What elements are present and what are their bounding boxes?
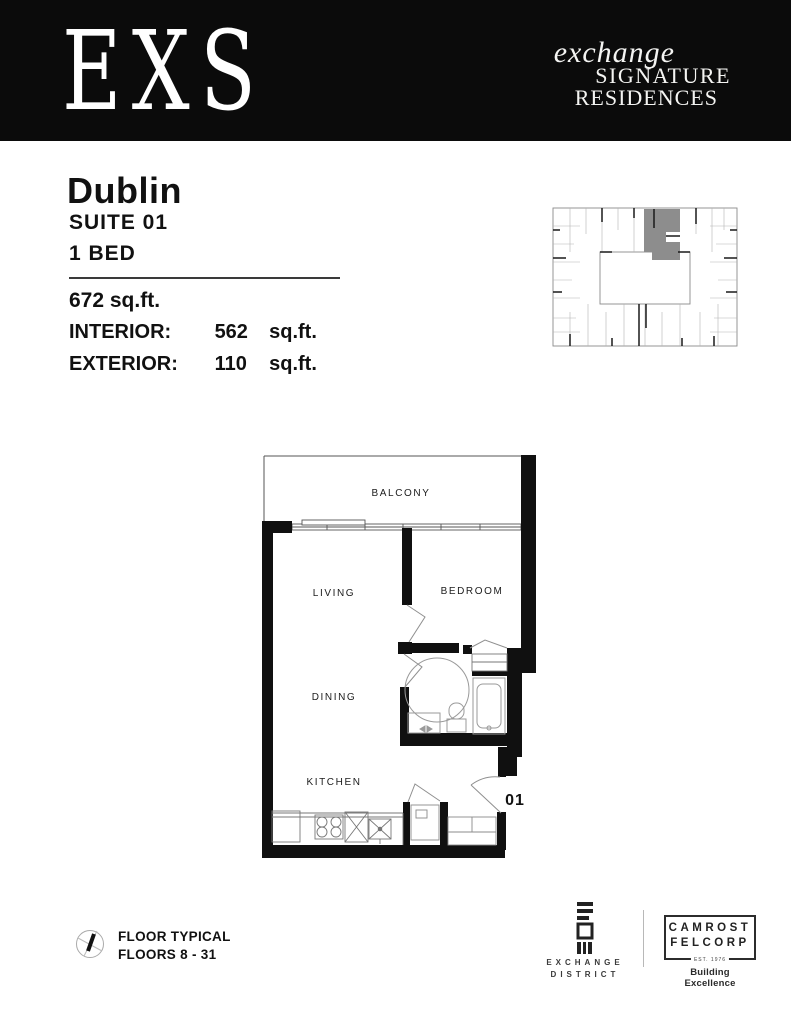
bedroom-closet <box>472 654 507 671</box>
suite-number: SUITE 01 <box>69 211 168 235</box>
interior-value: 562 <box>215 321 264 344</box>
footer-divider <box>643 910 644 967</box>
camrost-line1: CAMROST <box>666 921 754 936</box>
bedroom-closet-bifold <box>470 640 507 648</box>
fridge <box>272 811 300 842</box>
exterior-label: EXTERIOR: <box>69 353 209 376</box>
bathtub-inner <box>477 684 501 728</box>
suite-name: Dublin <box>67 170 182 212</box>
cooktop <box>315 815 343 839</box>
total-area: 672 sq.ft. <box>69 289 160 313</box>
floorplan-page: EXS exchange SIGNATURE RESIDENCES Dublin… <box>0 0 791 1024</box>
exchange-district-logo: EXCHANGE DISTRICT <box>545 901 625 979</box>
turning-circle <box>405 658 469 722</box>
exterior-value: 110 <box>215 353 264 376</box>
keyplan-diagram <box>550 200 740 360</box>
brand-residences: RESIDENCES <box>575 85 718 111</box>
door-swings <box>404 605 507 813</box>
entry-fixtures <box>411 805 496 845</box>
exterior-unit: sq.ft. <box>269 353 317 375</box>
divider-rule <box>69 277 340 279</box>
bedroom-label: BEDROOM <box>441 586 504 597</box>
entry-door <box>471 777 501 813</box>
camrost-felcorp-logo: CAMROST FELCORP EST. 1976 Building Excel… <box>664 915 756 989</box>
laundry-door <box>408 784 440 802</box>
walls <box>262 455 536 858</box>
exchange-district-icon <box>568 901 602 955</box>
bathroom-door <box>404 654 422 687</box>
header-banner: EXS exchange SIGNATURE RESIDENCES <box>0 0 791 141</box>
living-label: LIVING <box>313 588 355 599</box>
suite-bed-count: 1 BED <box>69 242 136 266</box>
exs-logo: EXS <box>62 0 266 141</box>
counter-edge <box>272 813 403 845</box>
floor-plan: BALCONY LIVING BEDROOM DINING KITCHEN 01 <box>253 440 553 865</box>
floor-note: FLOOR TYPICAL FLOORS 8 - 31 <box>118 928 231 964</box>
interior-area-row: INTERIOR: 562 sq.ft. <box>69 321 317 344</box>
exterior-area-row: EXTERIOR: 110 sq.ft. <box>69 353 317 376</box>
floor-note-line2: FLOORS 8 - 31 <box>118 946 231 964</box>
exchange-district-line2: DISTRICT <box>545 970 625 979</box>
unit-number-label: 01 <box>505 792 525 809</box>
exchange-district-line1: EXCHANGE <box>545 958 625 967</box>
interior-unit: sq.ft. <box>269 321 317 343</box>
camrost-tagline: Building Excellence <box>664 967 756 989</box>
camrost-line2: FELCORP <box>666 936 754 951</box>
camrost-est: EST. 1976 <box>691 957 729 963</box>
sink-faucet-icon <box>420 726 432 732</box>
north-arrow-icon <box>72 925 108 961</box>
balcony-label: BALCONY <box>372 488 431 499</box>
bedroom-door <box>407 605 425 642</box>
camrost-box: CAMROST FELCORP EST. 1976 <box>664 915 756 960</box>
kitchen-label: KITCHEN <box>306 777 361 788</box>
floor-note-line1: FLOOR TYPICAL <box>118 928 231 946</box>
interior-label: INTERIOR: <box>69 321 209 344</box>
balcony-slider-door <box>302 520 365 525</box>
kitchen-fixtures <box>272 811 403 845</box>
toilet-tank <box>447 719 466 732</box>
dining-label: DINING <box>312 692 357 703</box>
